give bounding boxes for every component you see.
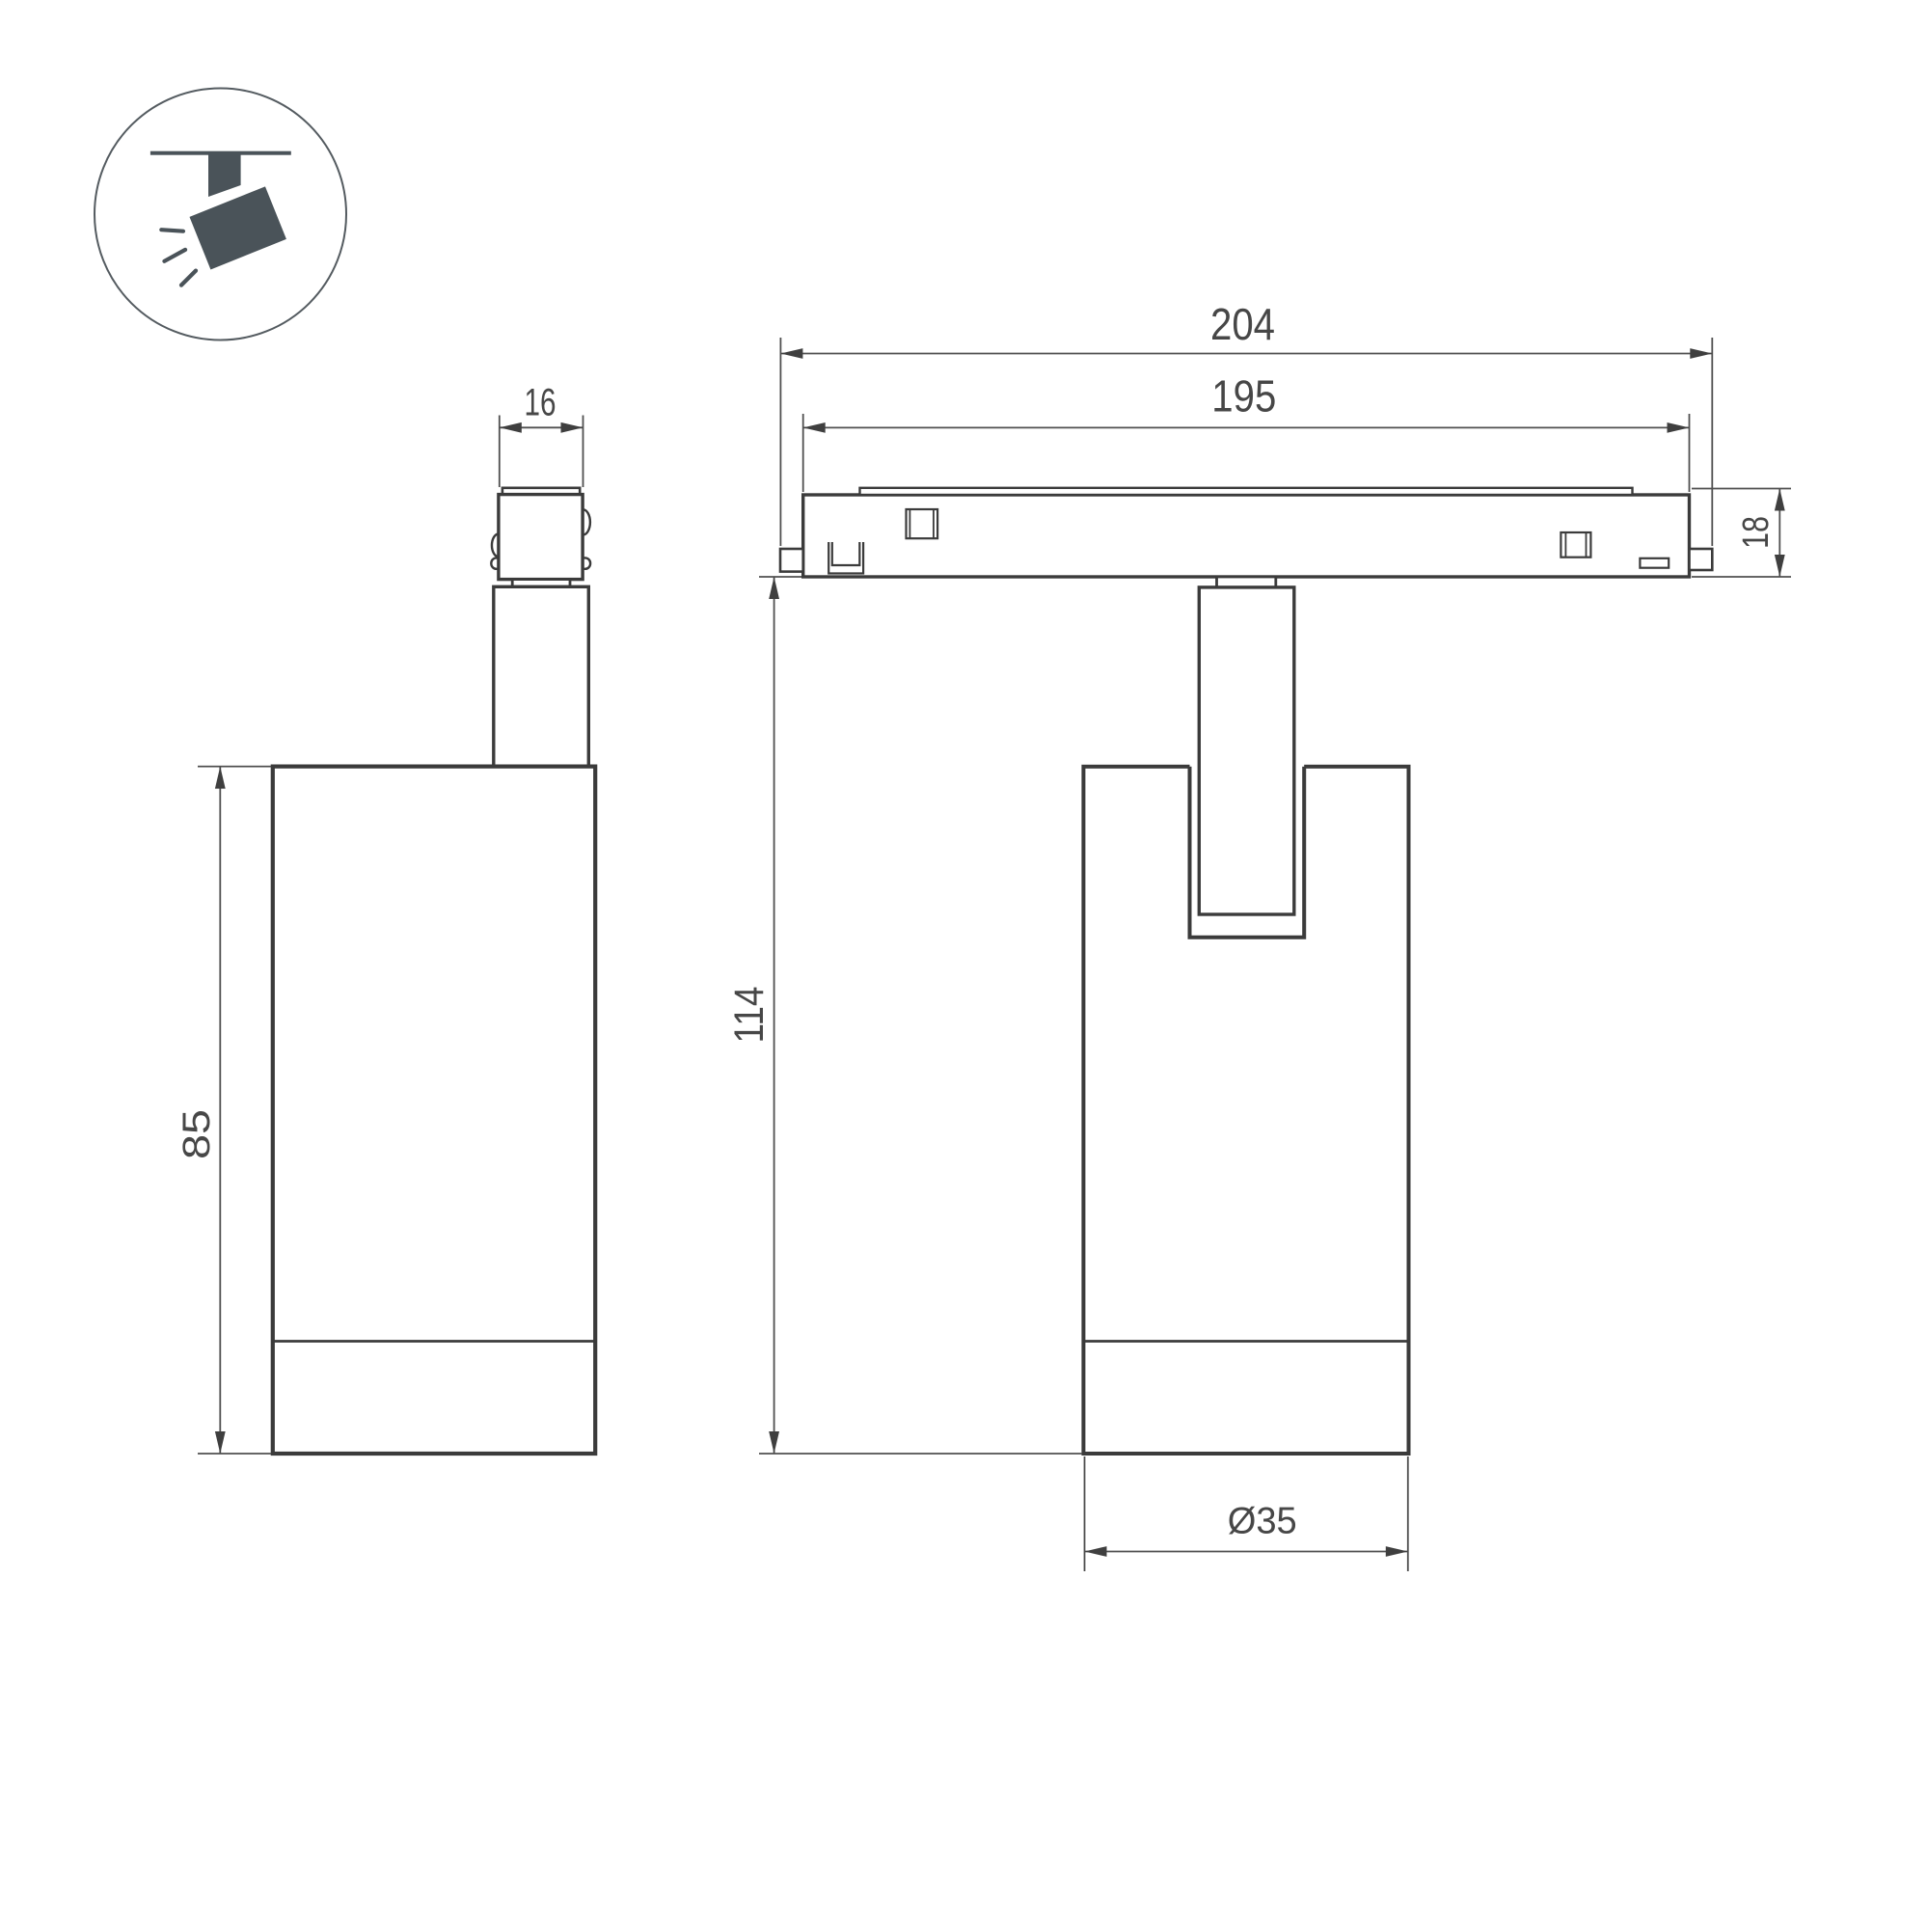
svg-text:Ø35: Ø35 (1228, 1501, 1297, 1542)
svg-text:18: 18 (1736, 516, 1777, 549)
svg-text:114: 114 (727, 987, 773, 1044)
svg-text:204: 204 (1210, 299, 1275, 349)
svg-text:85: 85 (176, 1109, 218, 1159)
svg-text:16: 16 (525, 382, 556, 424)
svg-text:195: 195 (1211, 371, 1276, 422)
